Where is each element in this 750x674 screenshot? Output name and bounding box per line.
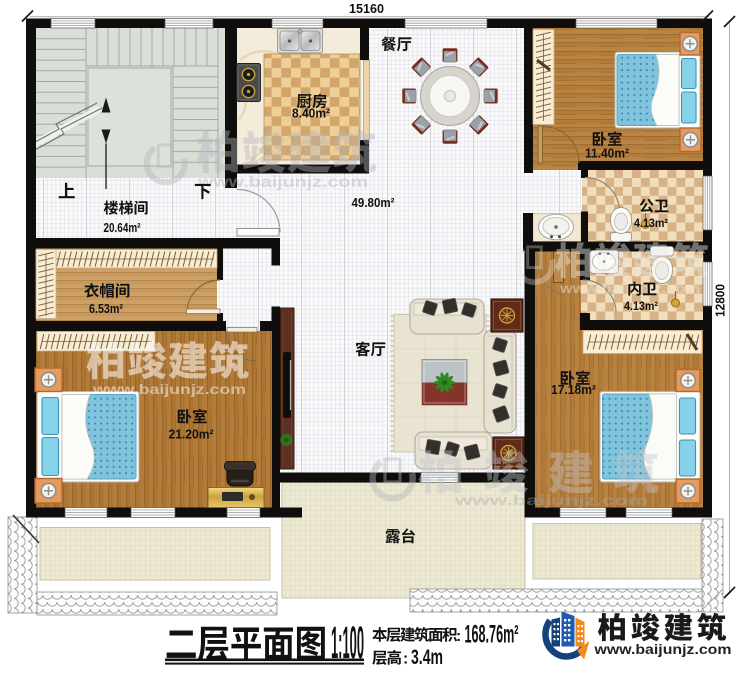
svg-text:17.18m²: 17.18m² [551, 383, 596, 397]
svg-text:8.40m²: 8.40m² [292, 107, 330, 121]
svg-text::: : [456, 628, 461, 645]
svg-text:49.80m²: 49.80m² [352, 196, 395, 210]
svg-text:www.baijunjz.com: www.baijunjz.com [197, 174, 368, 191]
svg-text:www.baijunjz.com: www.baijunjz.com [453, 492, 648, 508]
svg-text:12800: 12800 [713, 284, 728, 317]
svg-text::: : [403, 651, 408, 668]
svg-text:4.13m²: 4.13m² [624, 299, 658, 313]
svg-text:4.13m²: 4.13m² [634, 216, 668, 230]
svg-text:21.20m²: 21.20m² [169, 428, 214, 442]
svg-text:11.40m²: 11.40m² [585, 147, 629, 161]
svg-text:www.baijunjz.com: www.baijunjz.com [92, 382, 246, 397]
svg-text:3.4m: 3.4m [411, 646, 443, 669]
svg-text:15160: 15160 [349, 2, 384, 16]
svg-text:6.53m²: 6.53m² [89, 302, 123, 316]
svg-text:www.baijunjz.com: www.baijunjz.com [593, 642, 731, 657]
svg-text:20.64m²: 20.64m² [104, 221, 141, 235]
svg-text:168.76m²: 168.76m² [465, 621, 519, 649]
